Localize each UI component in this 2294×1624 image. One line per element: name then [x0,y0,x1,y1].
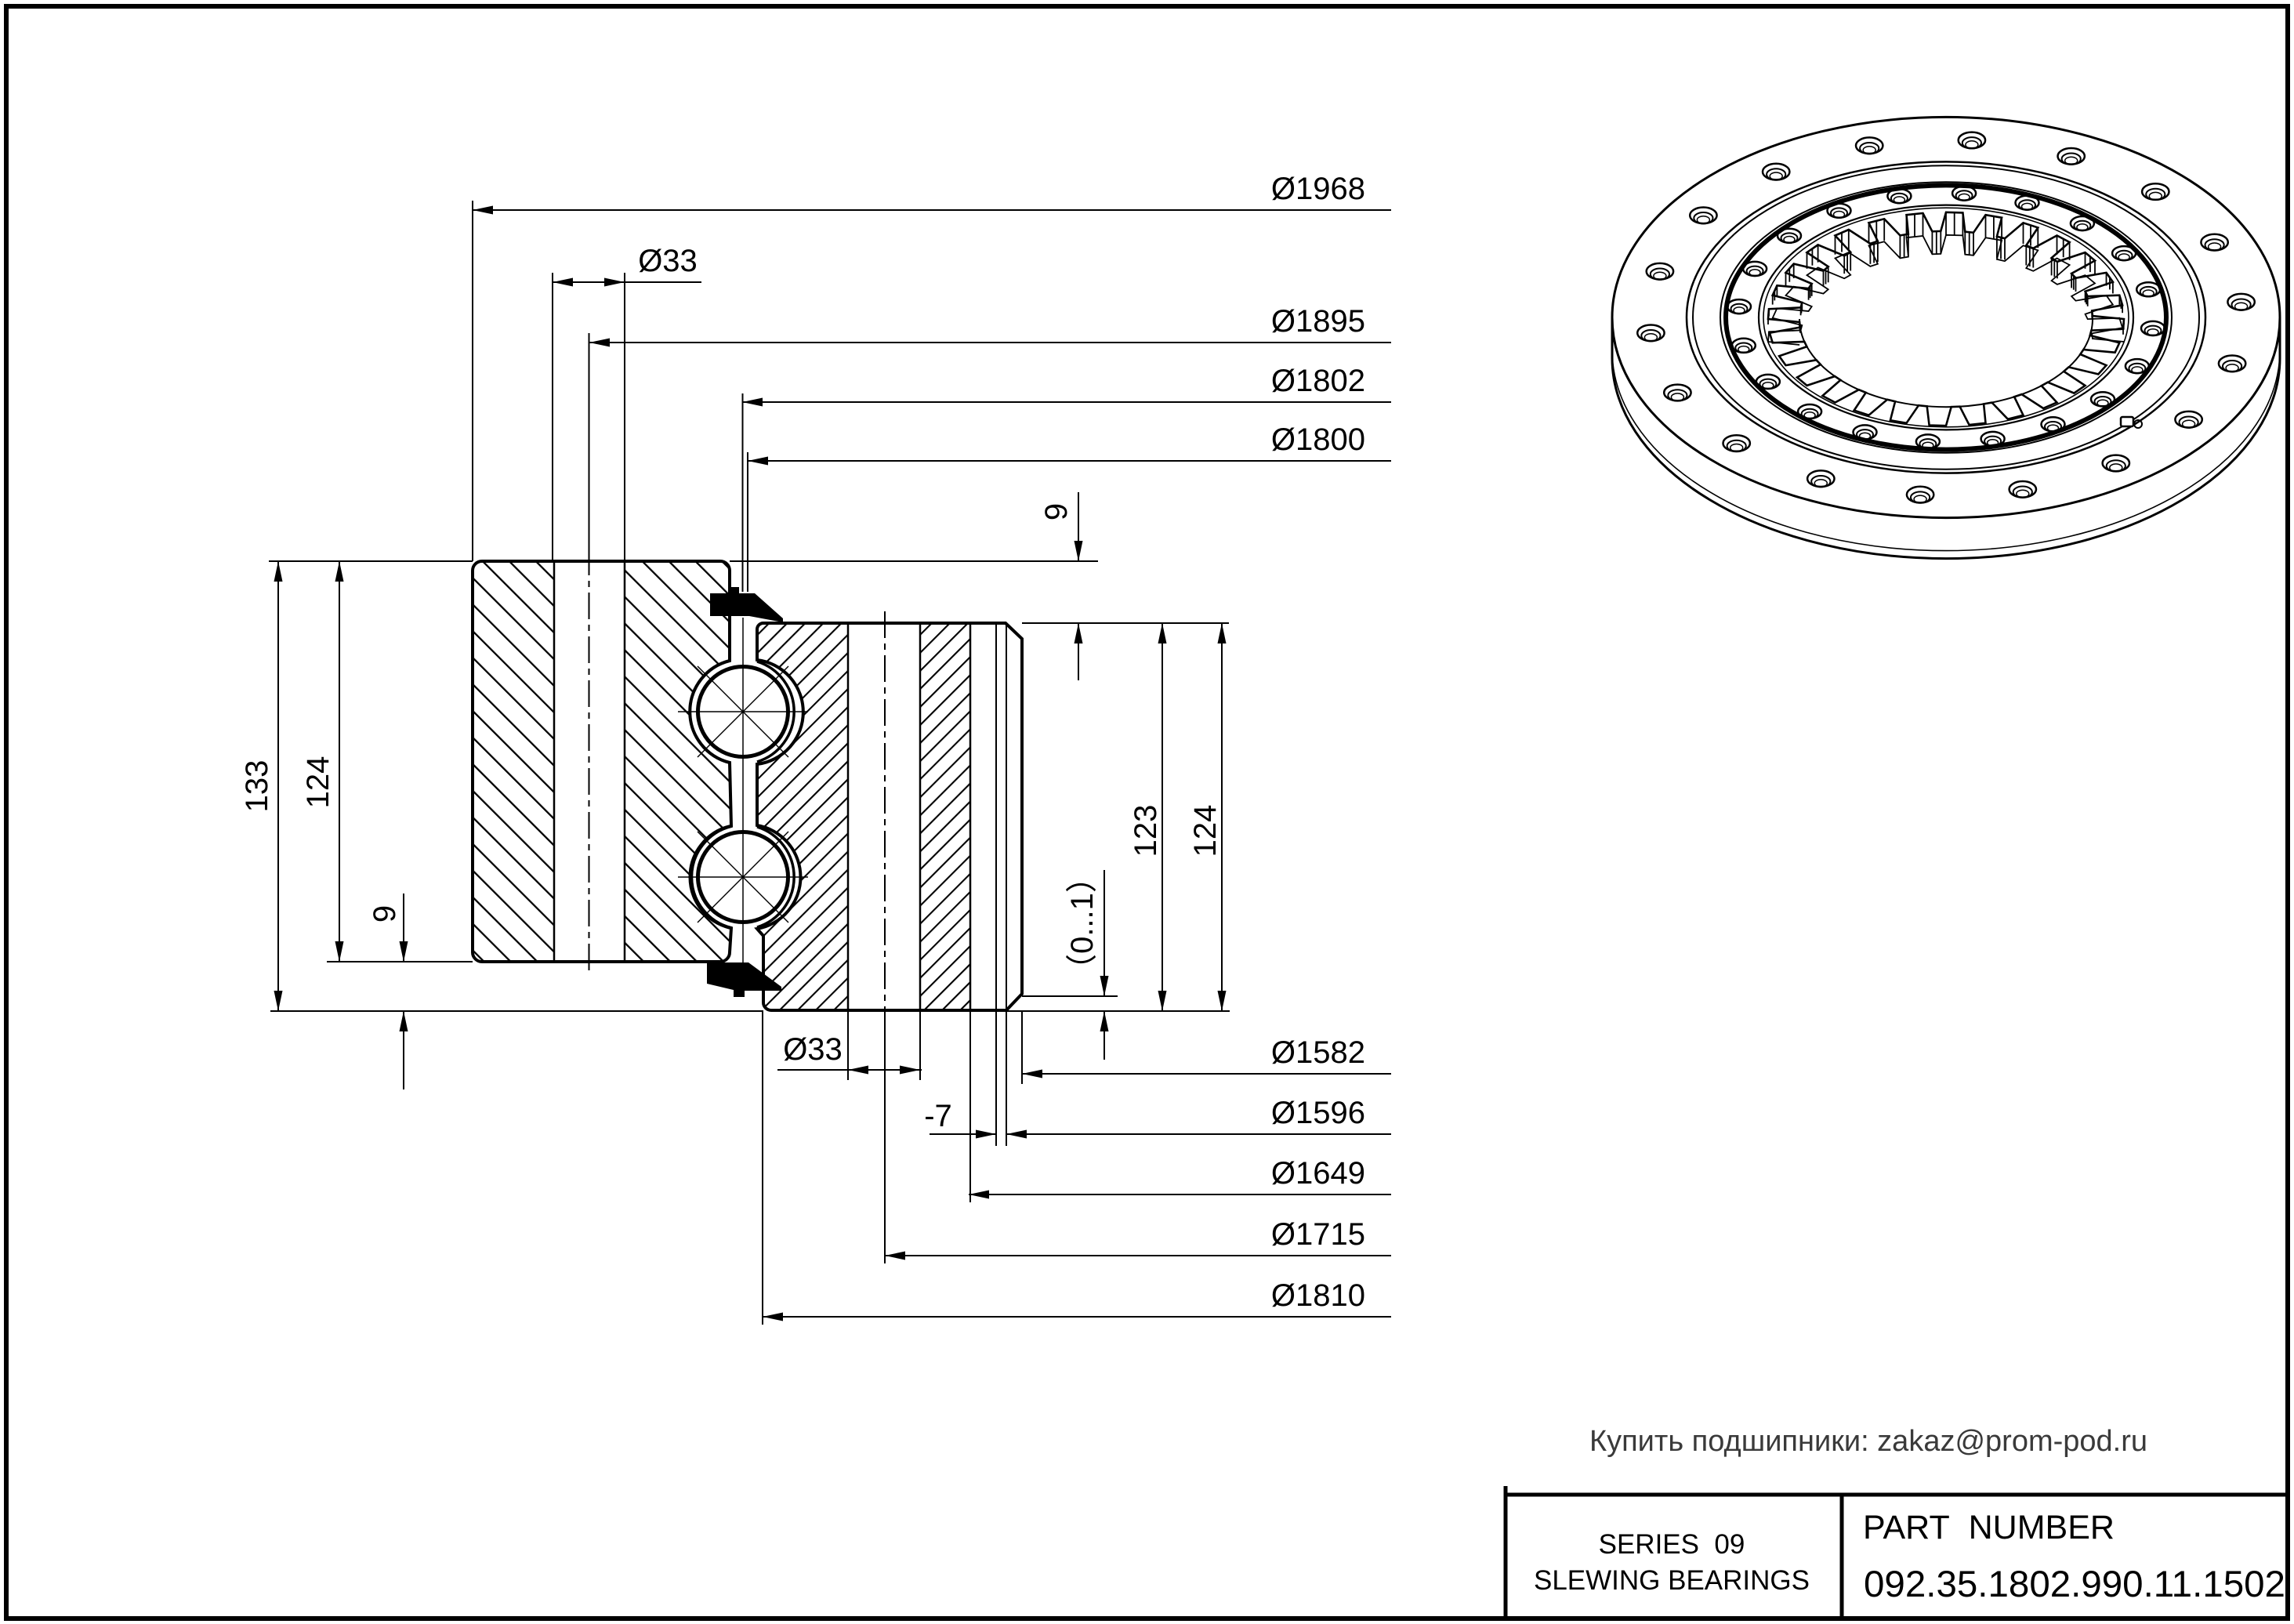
svg-text:092.35.1802.990.11.1502: 092.35.1802.990.11.1502 [1864,1564,2285,1605]
svg-text:Ø1810: Ø1810 [1271,1278,1365,1313]
svg-text:Ø1596: Ø1596 [1271,1096,1365,1130]
svg-text:9: 9 [1039,503,1074,520]
svg-text:Ø1802: Ø1802 [1271,364,1365,398]
svg-text:-7: -7 [924,1099,952,1133]
svg-text:SLEWING BEARINGS: SLEWING BEARINGS [1534,1565,1810,1596]
svg-text:Ø1895: Ø1895 [1271,304,1365,339]
svg-text:124: 124 [301,756,335,809]
svg-text:Ø1800: Ø1800 [1271,422,1365,457]
svg-text:Ø1582: Ø1582 [1271,1035,1365,1070]
svg-text:Ø1649: Ø1649 [1271,1156,1365,1191]
svg-text:9: 9 [368,905,402,923]
svg-text:PART NUMBER: PART NUMBER [1863,1509,2115,1546]
svg-text:Купить подшипники: zakaz@prom-: Купить подшипники: zakaz@prom-pod.ru [1589,1425,2147,1458]
svg-text:（0...1）: （0...1） [1065,861,1100,985]
svg-text:124: 124 [1188,805,1223,857]
svg-text:Ø1968: Ø1968 [1271,172,1365,206]
svg-text:Ø33: Ø33 [783,1032,843,1067]
svg-text:Ø33: Ø33 [638,244,698,278]
svg-text:SERIES 09: SERIES 09 [1599,1529,1745,1560]
svg-text:Ø1715: Ø1715 [1271,1217,1365,1252]
svg-text:123: 123 [1129,805,1163,857]
svg-text:133: 133 [240,760,274,813]
